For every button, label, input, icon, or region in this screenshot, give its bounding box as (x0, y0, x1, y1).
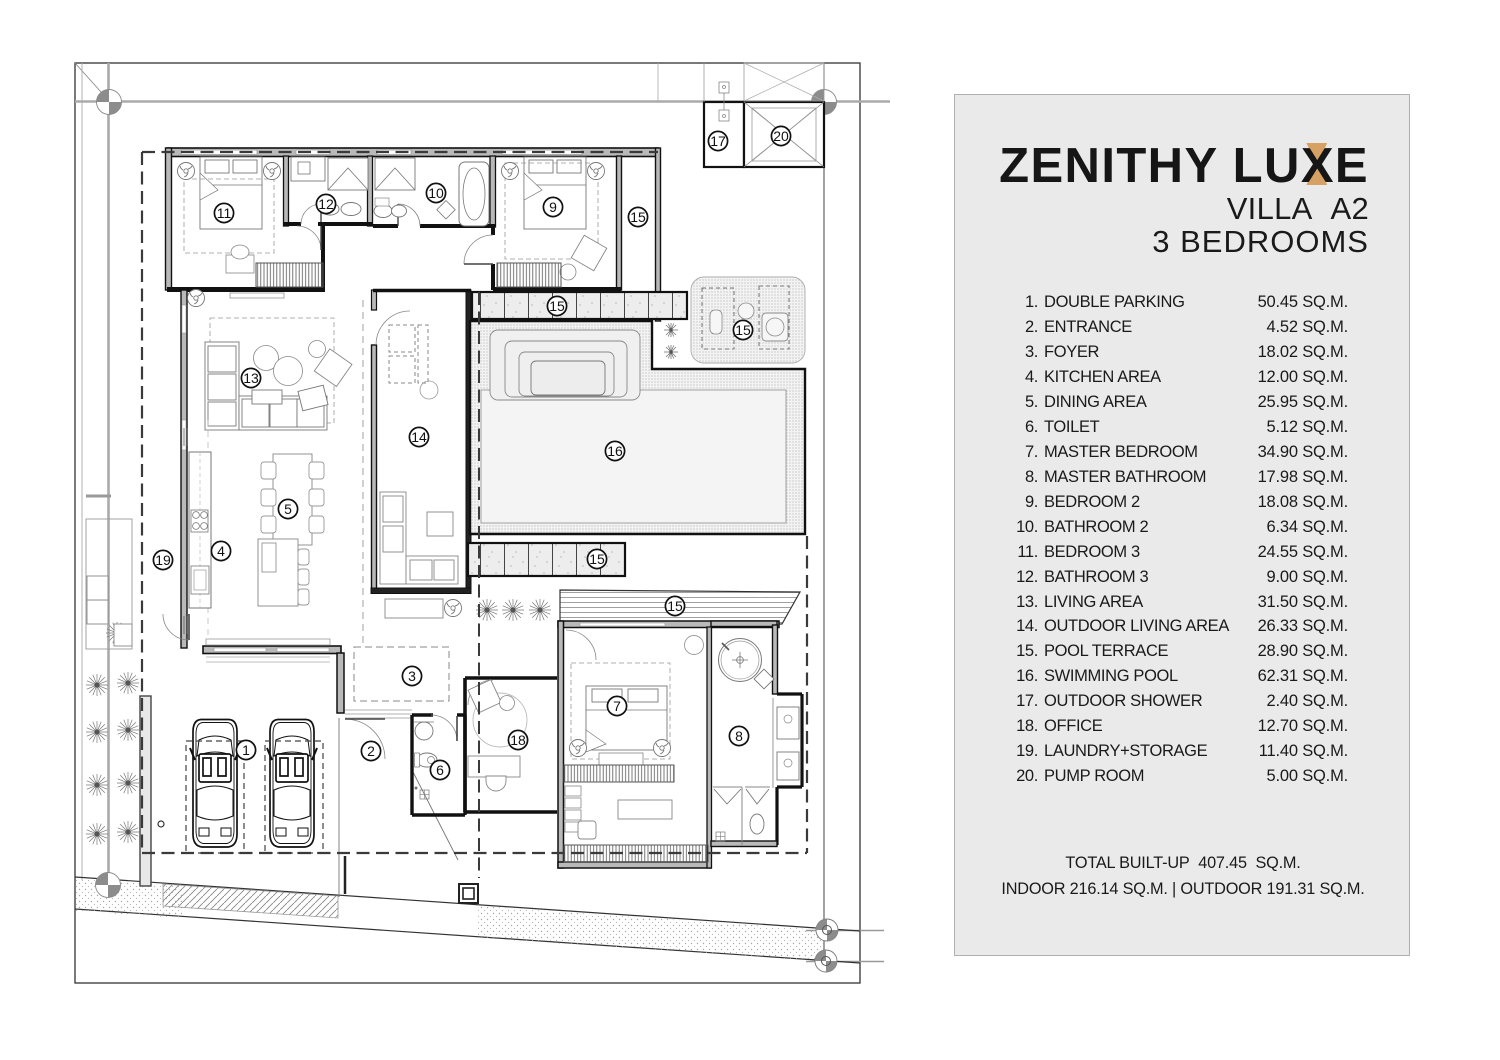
svg-text:7: 7 (613, 698, 621, 714)
svg-text:10: 10 (428, 185, 444, 201)
svg-text:8: 8 (735, 728, 743, 744)
svg-text:13: 13 (243, 370, 259, 386)
svg-text:17: 17 (710, 133, 726, 149)
svg-text:15: 15 (667, 598, 683, 614)
svg-text:6: 6 (436, 762, 444, 778)
svg-text:18: 18 (510, 732, 526, 748)
svg-text:20: 20 (773, 128, 789, 144)
svg-text:2: 2 (367, 743, 375, 759)
svg-text:15: 15 (549, 298, 565, 314)
svg-text:16: 16 (607, 443, 623, 459)
svg-text:15: 15 (735, 322, 751, 338)
svg-text:4: 4 (217, 543, 225, 559)
svg-text:12: 12 (318, 196, 334, 212)
svg-text:14: 14 (411, 429, 427, 445)
svg-text:15: 15 (589, 551, 605, 567)
svg-text:15: 15 (630, 209, 646, 225)
svg-text:11: 11 (217, 205, 232, 221)
svg-text:9: 9 (549, 199, 557, 215)
svg-text:1: 1 (242, 742, 250, 758)
svg-text:5: 5 (284, 501, 292, 517)
svg-text:3: 3 (408, 668, 416, 684)
svg-text:19: 19 (155, 552, 171, 568)
